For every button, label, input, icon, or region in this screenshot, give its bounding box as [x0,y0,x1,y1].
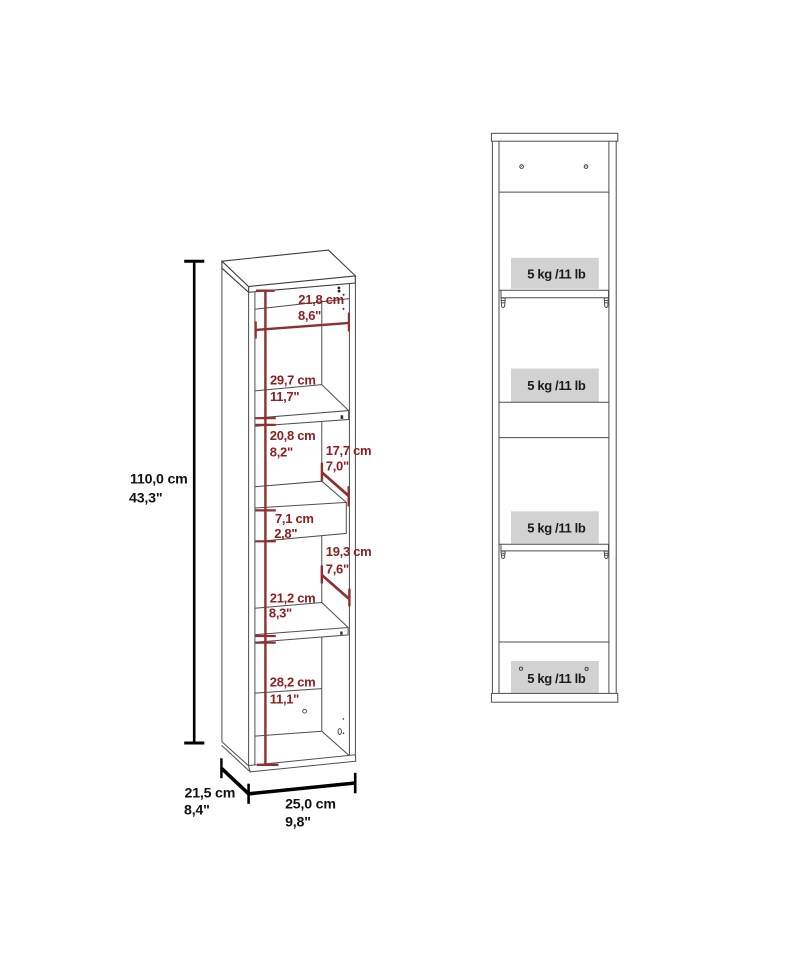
svg-text:8,4": 8,4" [184,803,210,819]
svg-text:5 kg /11 lb: 5 kg /11 lb [527,266,586,281]
svg-text:8,2": 8,2" [270,445,293,460]
svg-text:2,8": 2,8" [274,526,297,541]
svg-text:21,5 cm: 21,5 cm [185,785,236,801]
svg-text:8,3": 8,3" [269,605,292,620]
svg-text:5 kg /11 lb: 5 kg /11 lb [527,520,586,535]
svg-text:9,8": 9,8" [285,814,311,830]
svg-text:5 kg /11 lb: 5 kg /11 lb [527,378,586,393]
svg-text:19,3 cm: 19,3 cm [326,544,372,559]
svg-text:7,6": 7,6" [326,562,349,577]
svg-text:110,0 cm: 110,0 cm [130,471,188,487]
svg-text:7,1 cm: 7,1 cm [275,511,314,526]
svg-text:28,2 cm: 28,2 cm [270,675,316,690]
svg-text:11,1": 11,1" [270,691,299,706]
svg-text:43,3": 43,3" [129,491,162,507]
svg-text:7,0": 7,0" [326,458,349,473]
svg-text:8,6": 8,6" [298,308,321,323]
svg-text:21,8 cm: 21,8 cm [298,292,344,307]
svg-text:17,7 cm: 17,7 cm [326,443,372,458]
svg-text:21,2 cm: 21,2 cm [270,591,316,606]
svg-text:11,7": 11,7" [270,389,299,404]
svg-text:29,7 cm: 29,7 cm [270,372,316,387]
svg-text:25,0 cm: 25,0 cm [285,796,336,812]
svg-text:20,8 cm: 20,8 cm [270,428,316,443]
svg-text:5 kg /11 lb: 5 kg /11 lb [527,671,586,686]
